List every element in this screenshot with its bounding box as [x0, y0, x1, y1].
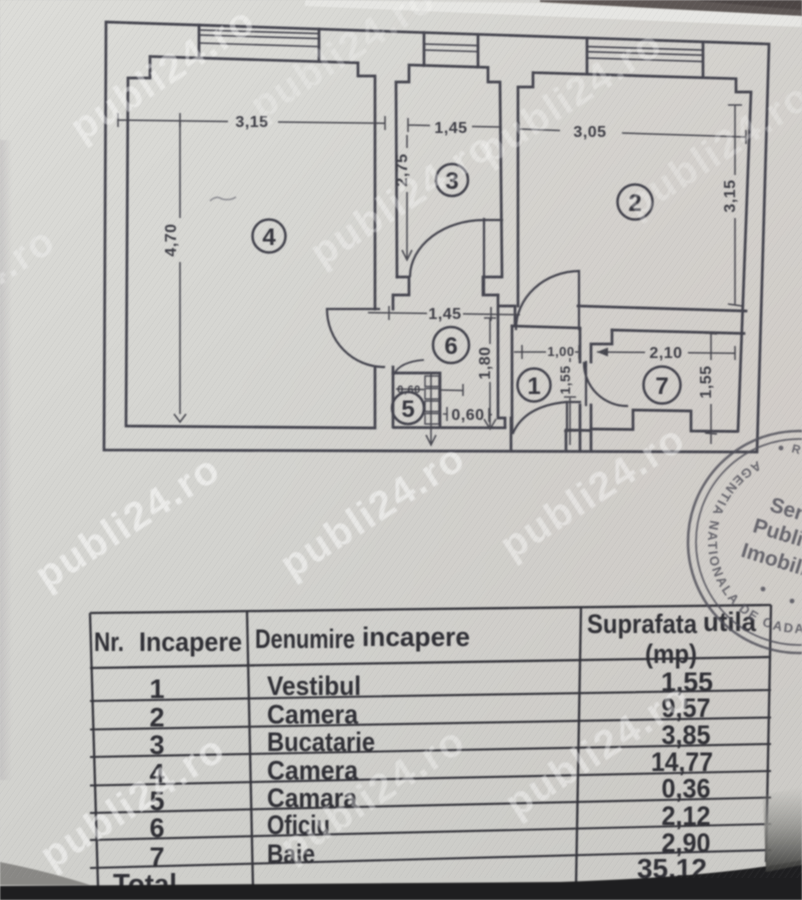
svg-text:4,70: 4,70 [163, 223, 180, 256]
svg-text:1: 1 [149, 674, 164, 704]
svg-text:6: 6 [149, 813, 164, 843]
svg-text:Bucatarie: Bucatarie [267, 727, 375, 757]
svg-text:2,12: 2,12 [662, 801, 711, 831]
svg-text:1,55: 1,55 [698, 365, 715, 398]
svg-text:3,15: 3,15 [722, 179, 739, 212]
svg-text:6: 6 [444, 333, 457, 360]
svg-text:Vestibul: Vestibul [267, 671, 361, 701]
svg-text:2,10: 2,10 [649, 345, 682, 362]
svg-text:Incapere: Incapere [139, 627, 242, 657]
svg-text:(mp): (mp) [645, 639, 697, 669]
svg-text:3,05: 3,05 [573, 124, 606, 141]
svg-text:incapere: incapere [362, 622, 470, 652]
svg-text:7: 7 [655, 373, 668, 400]
svg-text:1: 1 [527, 373, 540, 400]
svg-text:1,00: 1,00 [547, 344, 574, 359]
svg-text:4: 4 [262, 224, 276, 251]
svg-text:1,45: 1,45 [428, 306, 461, 323]
svg-text:Denumire: Denumire [255, 624, 355, 654]
svg-text:Camera: Camera [267, 756, 359, 786]
svg-text:Nr.: Nr. [94, 627, 124, 657]
svg-text:14,77: 14,77 [651, 747, 713, 777]
svg-text:2: 2 [149, 703, 164, 733]
svg-text:5: 5 [401, 396, 414, 423]
svg-text:1,80: 1,80 [477, 346, 494, 379]
svg-text:7: 7 [149, 842, 164, 872]
svg-text:Suprafata: Suprafata [587, 609, 698, 639]
svg-text:Camera: Camera [267, 700, 359, 730]
svg-text:3: 3 [149, 730, 164, 760]
svg-text:0,60: 0,60 [451, 407, 484, 424]
svg-text:1,55: 1,55 [557, 365, 573, 394]
svg-text:0,36: 0,36 [662, 774, 711, 804]
